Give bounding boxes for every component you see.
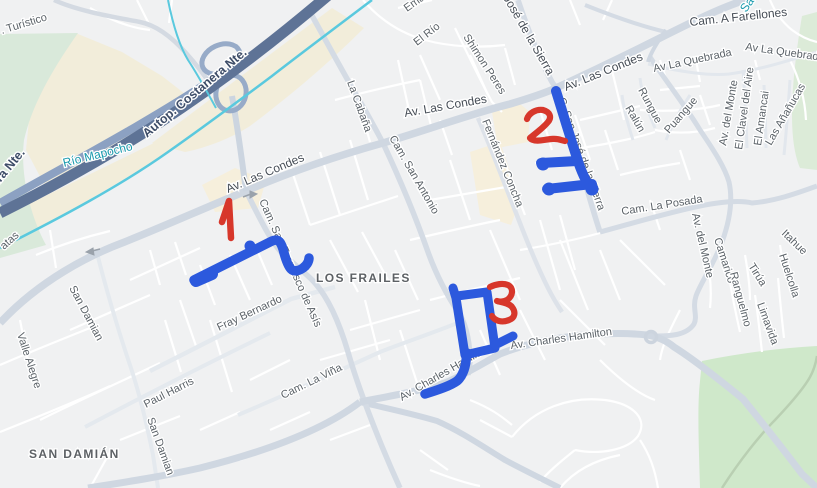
svg-text:SAN DAMIÁN: SAN DAMIÁN: [29, 446, 120, 461]
svg-text:LOS FRAILES: LOS FRAILES: [316, 271, 411, 285]
